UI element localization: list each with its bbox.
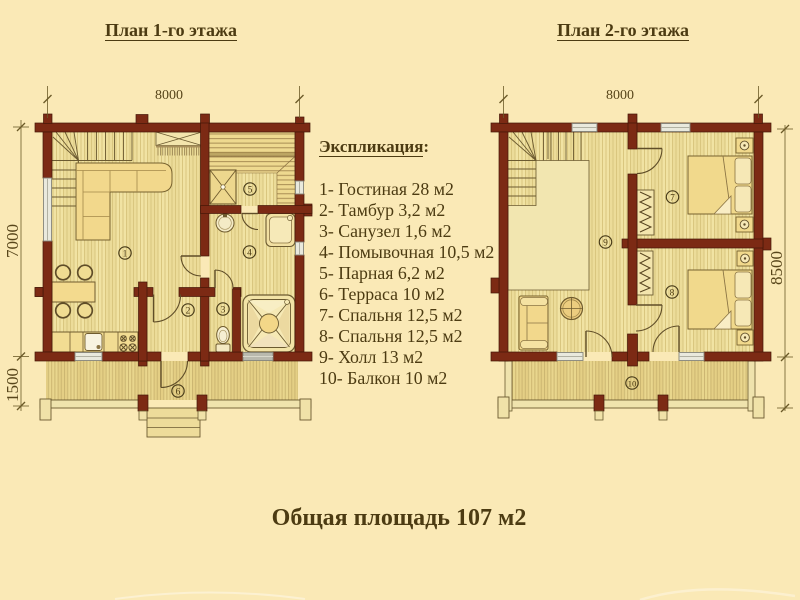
svg-text:8- Спальня 12,5 м2: 8- Спальня 12,5 м2 <box>319 326 463 346</box>
svg-text:1: 1 <box>123 249 128 259</box>
svg-text:4- Помывочная 10,5 м2: 4- Помывочная 10,5 м2 <box>319 242 494 262</box>
svg-text:3- Санузел 1,6 м2: 3- Санузел 1,6 м2 <box>319 221 451 241</box>
svg-text:9: 9 <box>603 238 608 248</box>
svg-text:10- Балкон 10 м2: 10- Балкон 10 м2 <box>319 368 447 388</box>
svg-text:План 1-го этажа: План 1-го этажа <box>105 20 237 40</box>
svg-text:6: 6 <box>176 387 181 397</box>
svg-text:10: 10 <box>628 378 637 388</box>
svg-text:Экспликация:: Экспликация: <box>319 137 429 156</box>
svg-text:4: 4 <box>247 248 252 258</box>
svg-text:8000: 8000 <box>155 88 183 103</box>
svg-text:8500: 8500 <box>767 251 786 285</box>
svg-text:7: 7 <box>670 193 675 203</box>
svg-text:Общая площадь 107 м2: Общая площадь 107 м2 <box>272 505 527 531</box>
svg-text:1- Гостиная 28 м2: 1- Гостиная 28 м2 <box>319 179 454 199</box>
svg-text:2- Тамбур 3,2 м2: 2- Тамбур 3,2 м2 <box>319 200 445 220</box>
svg-text:2: 2 <box>186 306 191 316</box>
svg-text:План 2-го этажа: План 2-го этажа <box>557 20 689 40</box>
svg-text:7- Спальня 12,5 м2: 7- Спальня 12,5 м2 <box>319 305 463 325</box>
svg-text:6- Терраса 10 м2: 6- Терраса 10 м2 <box>319 284 445 304</box>
svg-text:8: 8 <box>670 288 675 298</box>
svg-text:7000: 7000 <box>3 224 22 258</box>
svg-text:5: 5 <box>248 185 253 195</box>
svg-text:8000: 8000 <box>606 88 634 103</box>
svg-text:5- Парная 6,2 м2: 5- Парная 6,2 м2 <box>319 263 445 283</box>
svg-text:1500: 1500 <box>3 368 22 402</box>
svg-text:9- Холл 13 м2: 9- Холл 13 м2 <box>319 347 423 367</box>
svg-text:3: 3 <box>221 305 226 315</box>
